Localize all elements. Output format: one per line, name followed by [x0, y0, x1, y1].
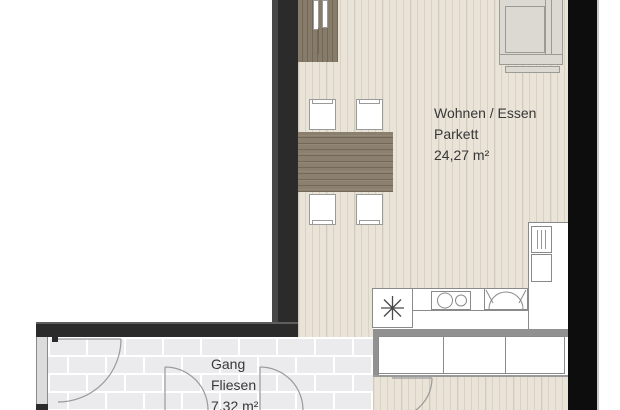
chair-backrest: [312, 220, 333, 225]
living-floor-type: Parkett: [434, 124, 536, 145]
hallway-floor-type: Fliesen: [211, 375, 258, 396]
living-area-value: 24,27 m²: [434, 145, 536, 166]
sink-basin-icon: [485, 289, 527, 309]
tall-column-top-edge: [528, 222, 568, 223]
wall-hallway-top: [36, 322, 298, 337]
kitchen-island: [378, 336, 565, 374]
living-room-name: Wohnen / Essen: [434, 103, 536, 124]
dining-table: [298, 132, 393, 192]
dining-chair: [356, 99, 383, 130]
entry-door-threshold: [36, 337, 48, 404]
sideboard-slot: [313, 0, 319, 30]
dining-chair: [309, 99, 336, 130]
floorplan: Wohnen / Essen Parkett 24,27 m² Gang Fli…: [0, 0, 620, 410]
sofa-armrest-line: [545, 0, 546, 55]
sofa-armrest-line: [551, 0, 552, 55]
wall-right: [568, 0, 597, 410]
room-label-living: Wohnen / Essen Parkett 24,27 m²: [434, 103, 536, 166]
sideboard-slot: [322, 0, 328, 28]
appliance-star-icon: [373, 289, 412, 327]
wall-left: [278, 0, 298, 337]
sideboard-line: [318, 28, 319, 54]
door-hinge-block: [52, 337, 58, 342]
hallway-name: Gang: [211, 354, 258, 375]
room-label-hallway: Gang Fliesen 7,32 m²: [211, 354, 258, 410]
wall-stub-bottom-left: [36, 404, 48, 410]
chair-backrest: [312, 99, 333, 104]
oven-vent-unit: [531, 226, 552, 253]
oven-box: [531, 254, 552, 282]
vent-lines: [537, 230, 546, 249]
sofa-seat: [505, 6, 545, 53]
island-front-edge: [373, 375, 568, 377]
dining-chair: [356, 194, 383, 225]
counter-back-edge: [412, 310, 528, 311]
chair-backrest: [359, 220, 380, 225]
sofa-back-line: [499, 54, 563, 55]
kitchen-appliance-box: [372, 288, 413, 328]
hallway-area-value: 7,32 m²: [211, 396, 258, 410]
island-divider: [443, 337, 444, 374]
tv-sideboard: [297, 0, 338, 62]
wall-right-edge-line: [597, 0, 599, 410]
tall-column-edge: [528, 222, 529, 337]
chair-backrest: [359, 99, 380, 104]
sink-icon: [484, 288, 528, 310]
cooktop-burners-icon: [432, 292, 470, 309]
dining-chair: [309, 194, 336, 225]
sofa-front-strip: [505, 66, 560, 73]
lower-room-parquet-floor: [373, 377, 568, 410]
island-divider: [505, 337, 506, 374]
cooktop-icon: [431, 291, 471, 310]
